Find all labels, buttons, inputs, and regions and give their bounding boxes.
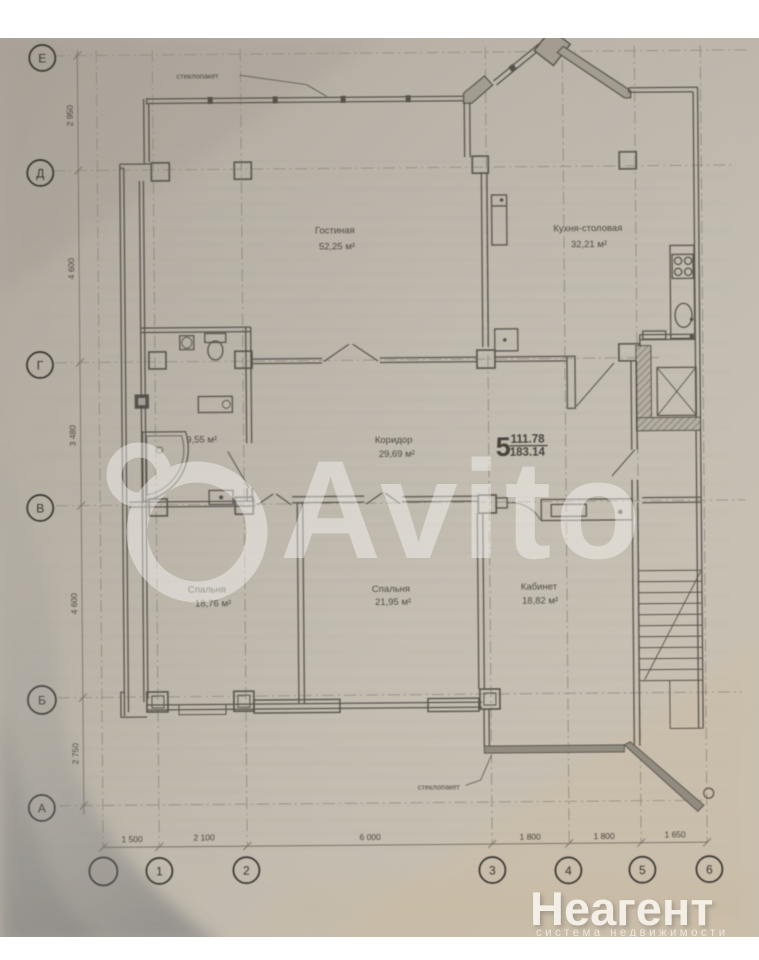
svg-text:4: 4 (565, 864, 572, 878)
svg-text:Кухня-столовая: Кухня-столовая (553, 223, 622, 235)
svg-text:1 500: 1 500 (121, 834, 143, 844)
svg-text:21,95 м²: 21,95 м² (375, 597, 411, 608)
svg-text:Avito: Avito (280, 431, 645, 588)
svg-text:Е: Е (38, 51, 46, 65)
svg-text:В: В (36, 501, 44, 515)
svg-text:9,55 м²: 9,55 м² (186, 434, 217, 445)
svg-text:32,21 м²: 32,21 м² (571, 239, 607, 250)
svg-text:1 800: 1 800 (519, 832, 541, 842)
svg-text:4 600: 4 600 (69, 593, 79, 615)
svg-text:6: 6 (706, 863, 713, 877)
svg-text:Д: Д (36, 166, 44, 180)
svg-text:2 100: 2 100 (193, 832, 215, 842)
svg-text:2 950: 2 950 (65, 105, 75, 127)
svg-text:1: 1 (156, 864, 163, 878)
svg-text:1 800: 1 800 (593, 831, 615, 841)
svg-text:4 600: 4 600 (66, 258, 76, 280)
svg-text:2: 2 (243, 864, 250, 878)
svg-text:6 000: 6 000 (359, 832, 381, 842)
svg-text:3 480: 3 480 (68, 425, 78, 447)
svg-text:5: 5 (639, 863, 646, 877)
svg-text:Гостиная: Гостиная (315, 225, 355, 236)
svg-text:52,25 м²: 52,25 м² (319, 241, 355, 252)
svg-text:18,82 м²: 18,82 м² (522, 595, 558, 606)
svg-text:1 650: 1 650 (664, 829, 686, 839)
svg-text:стеклопакет: стеклопакет (176, 71, 219, 80)
svg-text:3: 3 (489, 864, 496, 878)
svg-text:Г: Г (37, 358, 44, 372)
svg-text:стеклопакет: стеклопакет (418, 782, 461, 791)
